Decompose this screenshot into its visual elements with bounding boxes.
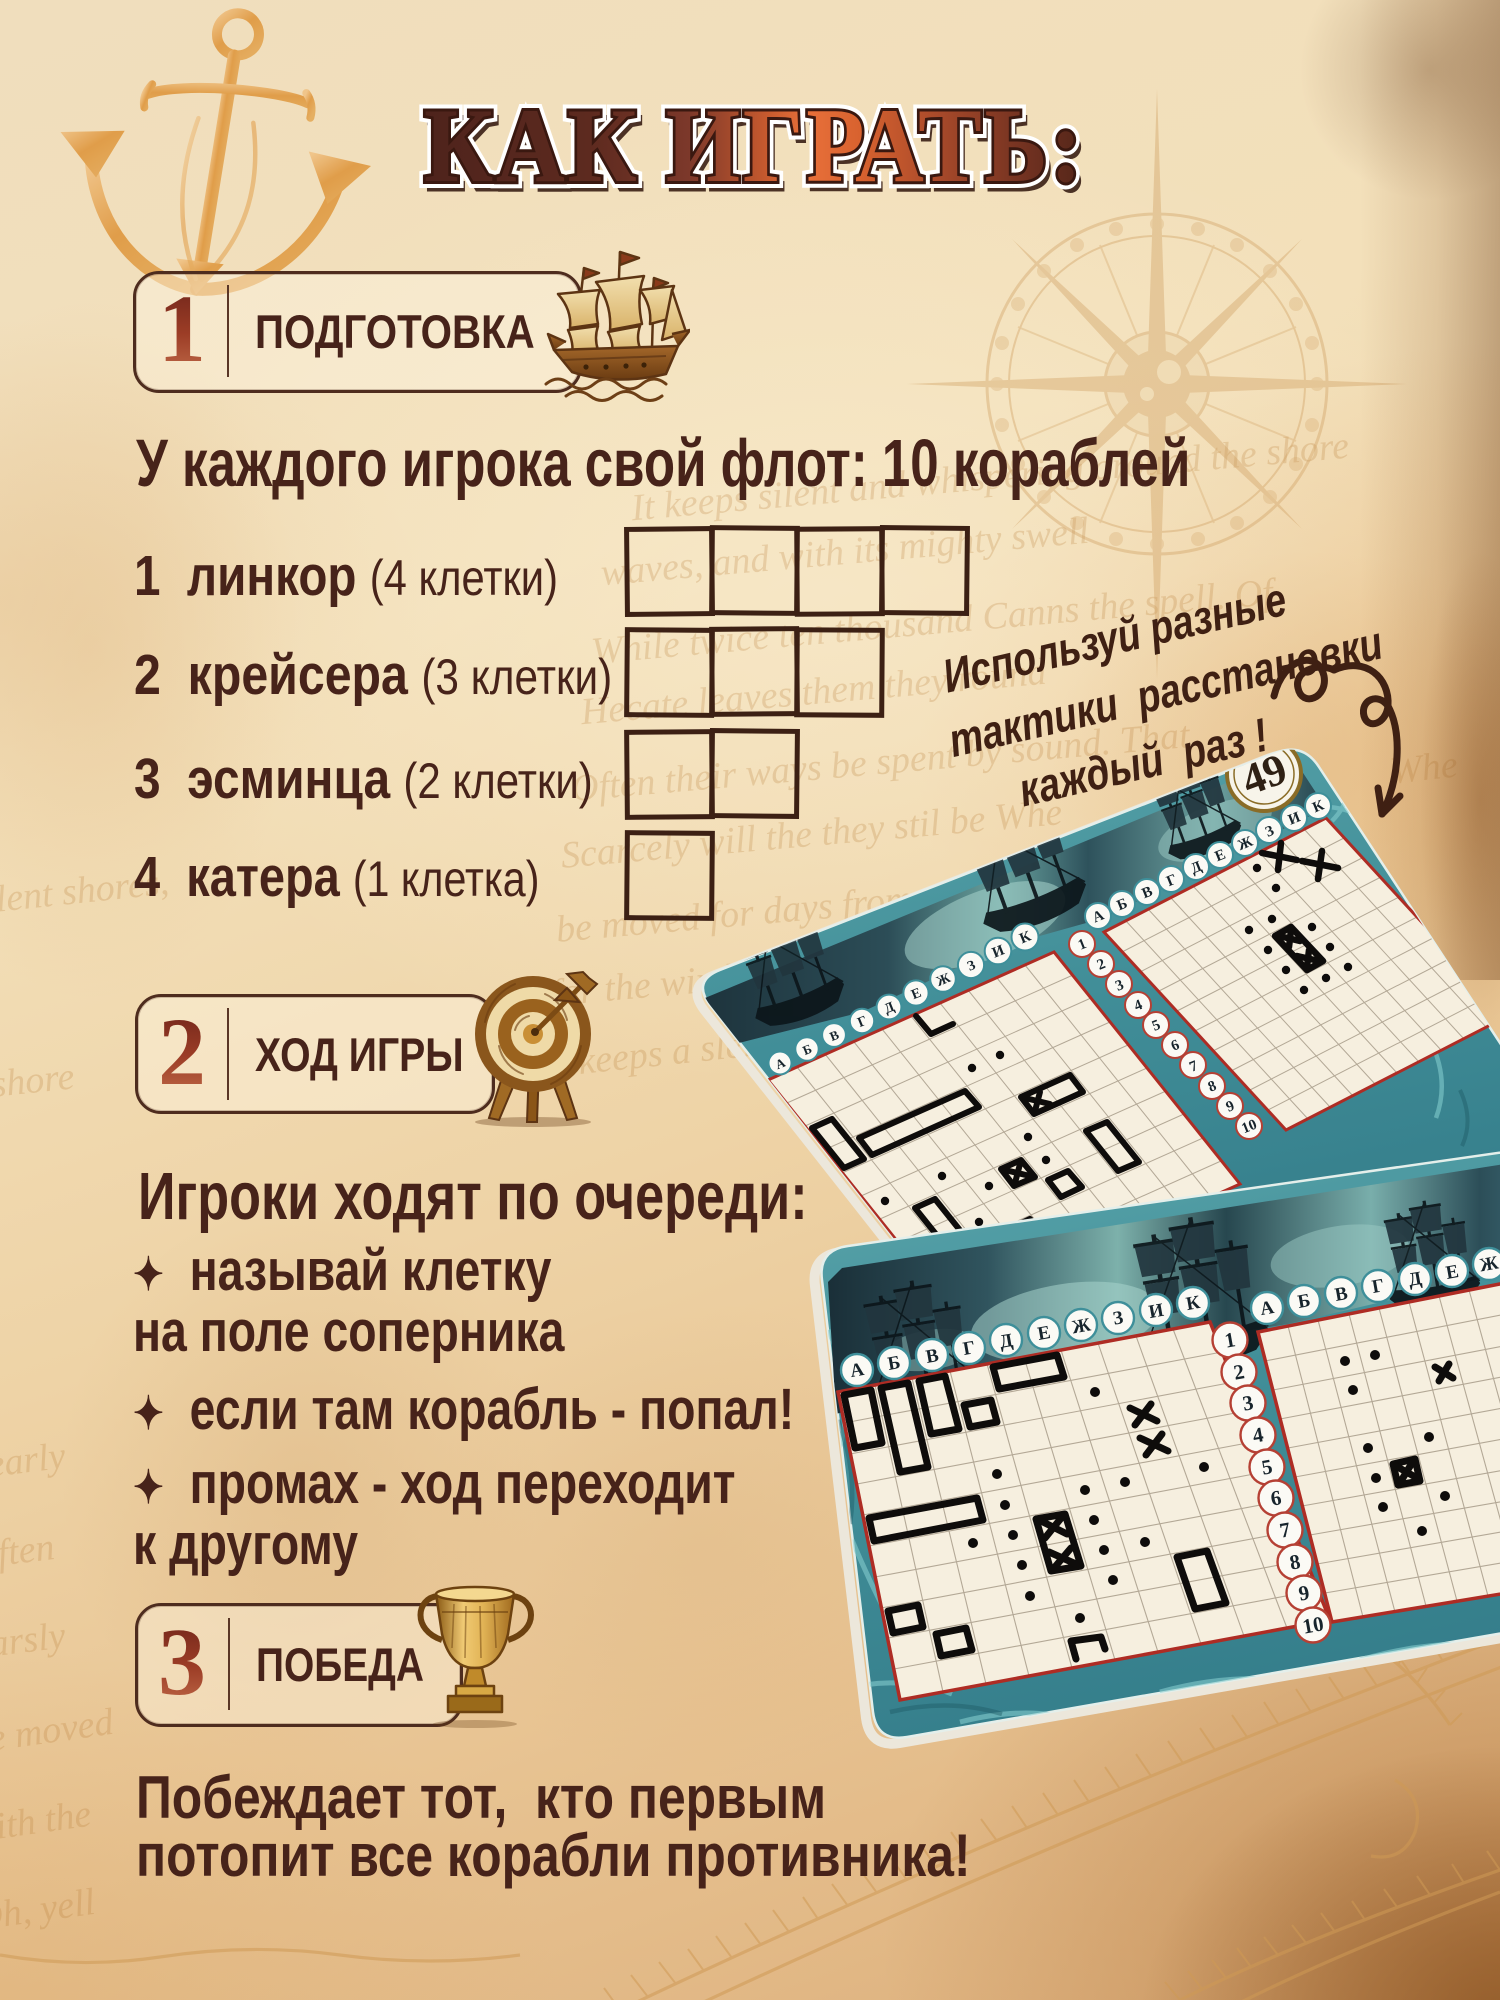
svg-text:Ж: Ж <box>1478 1252 1500 1276</box>
svg-text:Ж: Ж <box>1070 1314 1092 1338</box>
svg-text:10: 10 <box>1301 1611 1326 1638</box>
